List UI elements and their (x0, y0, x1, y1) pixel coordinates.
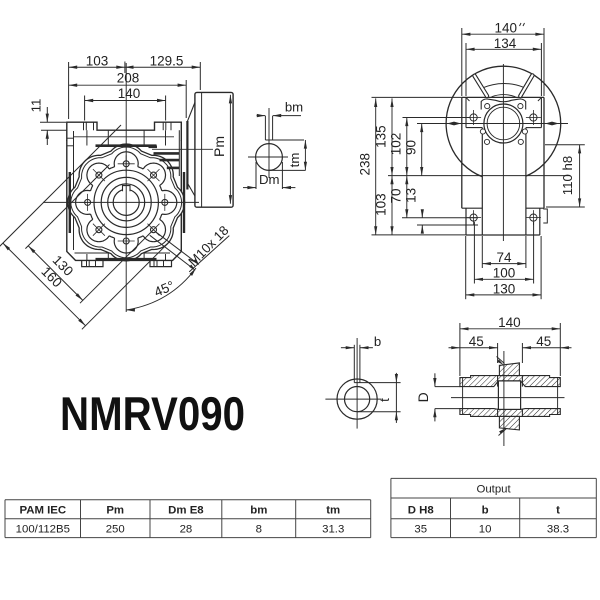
svg-text:103: 103 (373, 193, 388, 216)
svg-text:D H8: D H8 (408, 504, 434, 516)
svg-text:bm: bm (250, 504, 267, 516)
svg-text:31.3: 31.3 (322, 523, 344, 535)
svg-text:45: 45 (469, 334, 484, 349)
svg-text:10: 10 (479, 523, 492, 535)
svg-text:Output: Output (476, 484, 511, 496)
svg-text:Dm E8: Dm E8 (168, 504, 203, 516)
svg-text:90: 90 (404, 140, 419, 155)
svg-text:100: 100 (493, 266, 516, 281)
svg-text:PAM IEC: PAM IEC (19, 504, 66, 516)
svg-text:35: 35 (414, 523, 427, 535)
svg-text:Pm: Pm (106, 504, 124, 516)
svg-text:NMRV090: NMRV090 (60, 387, 245, 440)
svg-text:238: 238 (357, 153, 372, 176)
svg-text:Pm: Pm (211, 136, 227, 157)
svg-text:t: t (377, 398, 392, 402)
svg-text:11: 11 (29, 99, 44, 113)
svg-text:b: b (482, 504, 489, 516)
svg-text:b: b (374, 334, 381, 349)
svg-text:208: 208 (117, 71, 140, 86)
svg-text:Dm: Dm (259, 172, 280, 187)
svg-text:140: 140 (498, 315, 521, 330)
svg-text:140: 140 (495, 21, 518, 36)
svg-text:135: 135 (373, 125, 388, 148)
svg-text:t: t (556, 504, 560, 516)
svg-text:28: 28 (180, 523, 193, 535)
svg-text:70: 70 (388, 188, 403, 203)
svg-text:110 h8: 110 h8 (560, 156, 575, 195)
svg-text:74: 74 (496, 250, 512, 265)
svg-text:tm: tm (326, 504, 340, 516)
svg-text:38.3: 38.3 (547, 523, 569, 535)
svg-text:129.5: 129.5 (150, 54, 184, 69)
svg-text:102: 102 (388, 133, 403, 156)
svg-text:250: 250 (106, 523, 125, 535)
svg-text:D: D (415, 392, 431, 402)
svg-text:bm: bm (285, 100, 303, 115)
svg-text:tm: tm (287, 153, 302, 168)
svg-text:45: 45 (536, 334, 551, 349)
svg-text:13: 13 (404, 188, 419, 203)
svg-text:100/112B5: 100/112B5 (16, 523, 70, 535)
svg-text:130: 130 (493, 281, 516, 296)
svg-text:103: 103 (86, 54, 109, 69)
svg-text:140: 140 (118, 86, 141, 101)
svg-text:134: 134 (494, 36, 517, 51)
svg-text:8: 8 (256, 523, 262, 535)
